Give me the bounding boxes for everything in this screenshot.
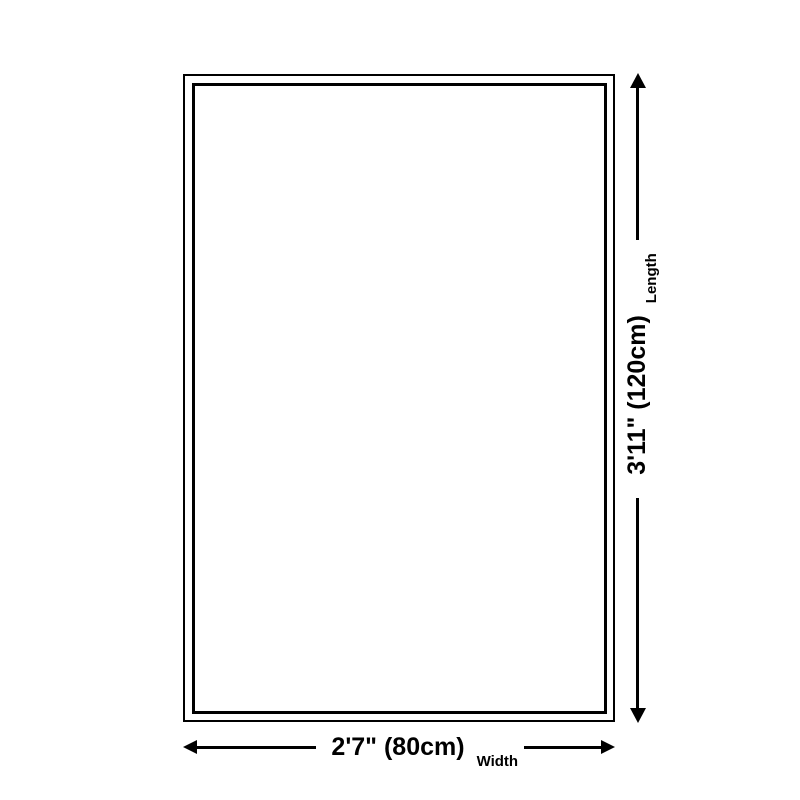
size-diagram: 3'11" (120cm) Length 2'7" (80cm) Width xyxy=(0,0,800,800)
arrow-down-icon xyxy=(630,708,646,723)
arrow-right-icon xyxy=(601,740,615,754)
product-outline-outer xyxy=(183,74,615,722)
width-caption: Width xyxy=(477,754,519,769)
length-value: 3'11" (120cm) xyxy=(623,315,651,475)
length-dimension-label: 3'11" (120cm) Length xyxy=(622,305,652,485)
product-outline-inner xyxy=(192,83,607,714)
length-arrow-line-lower xyxy=(636,498,639,709)
width-dimension-label: 2'7" (80cm) Width xyxy=(321,732,474,762)
width-arrow-line-right xyxy=(524,746,602,749)
arrow-left-icon xyxy=(183,740,197,754)
length-caption: Length xyxy=(644,253,659,303)
length-arrow-line-upper xyxy=(636,87,639,240)
width-arrow-line-left xyxy=(196,746,316,749)
width-value: 2'7" (80cm) xyxy=(331,733,464,761)
arrow-up-icon xyxy=(630,73,646,88)
